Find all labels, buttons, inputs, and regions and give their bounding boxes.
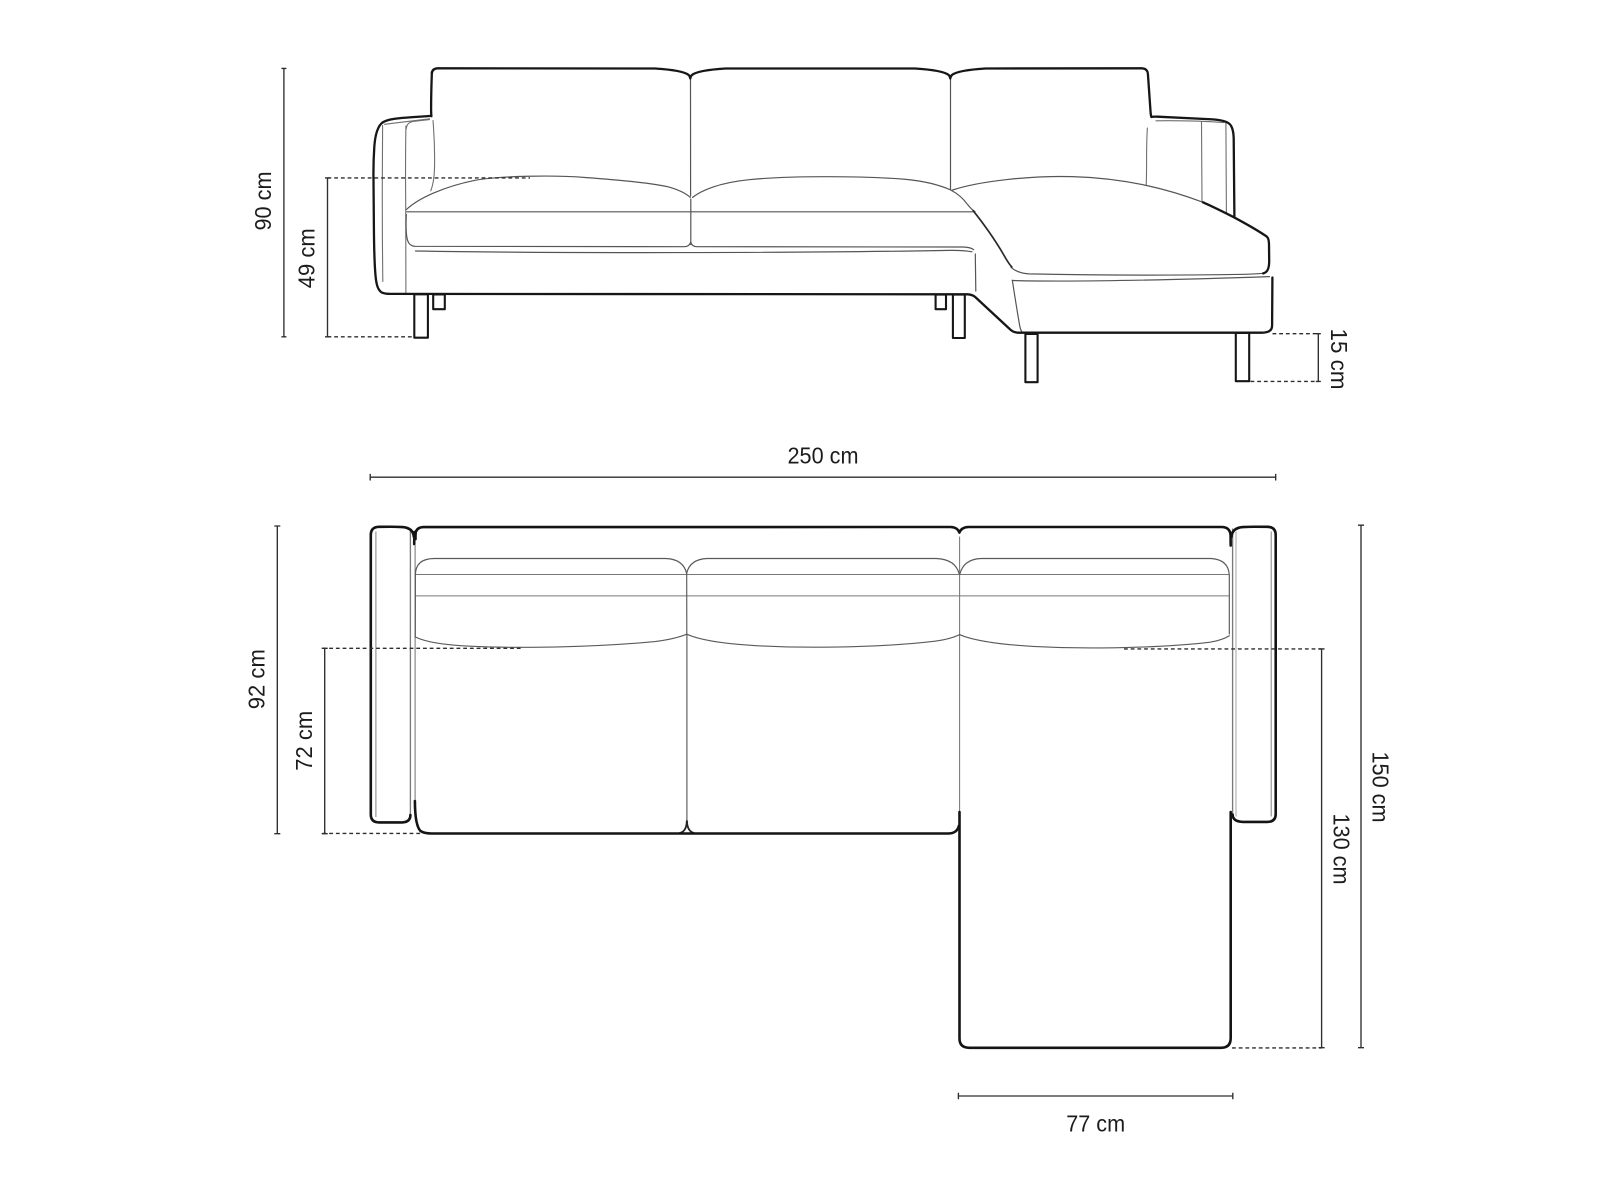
svg-text:15 cm: 15 cm	[1326, 329, 1352, 390]
svg-text:150 cm: 150 cm	[1368, 752, 1394, 823]
svg-text:90 cm: 90 cm	[250, 172, 276, 231]
svg-text:77 cm: 77 cm	[1066, 1111, 1125, 1137]
svg-text:130 cm: 130 cm	[1329, 814, 1355, 885]
svg-text:92 cm: 92 cm	[243, 649, 269, 709]
svg-text:49 cm: 49 cm	[294, 228, 320, 288]
svg-text:72 cm: 72 cm	[291, 711, 317, 771]
svg-text:250 cm: 250 cm	[788, 443, 859, 469]
